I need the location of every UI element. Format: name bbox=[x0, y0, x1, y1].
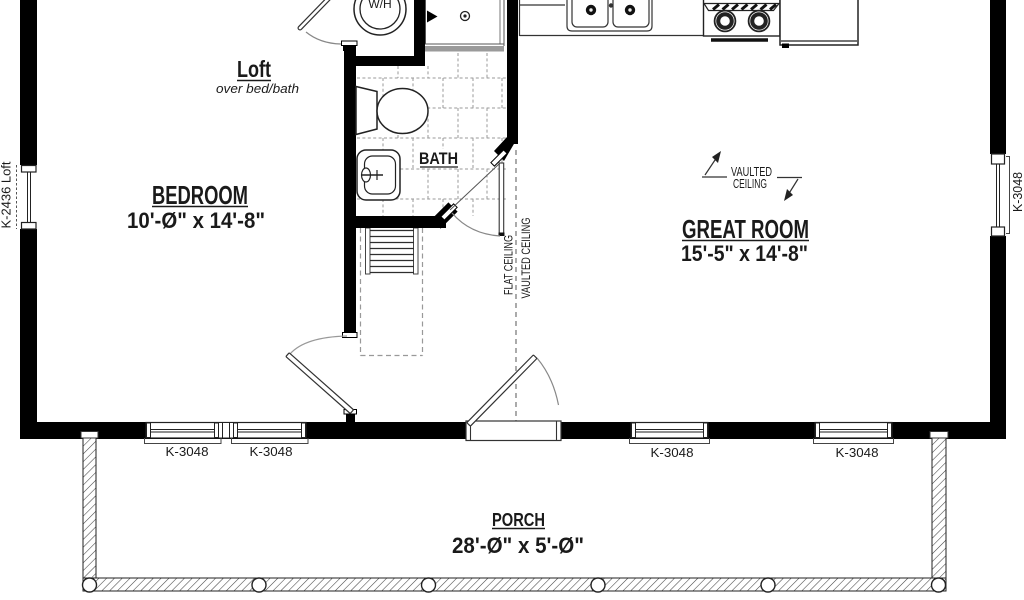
svg-text:K-3048: K-3048 bbox=[1011, 172, 1024, 212]
svg-text:28'-Ø" x 5'-Ø": 28'-Ø" x 5'-Ø" bbox=[452, 533, 584, 558]
svg-text:BATH: BATH bbox=[419, 150, 458, 168]
svg-text:W/H: W/H bbox=[368, 0, 391, 11]
svg-text:over bed/bath: over bed/bath bbox=[216, 82, 299, 96]
svg-text:K-3048: K-3048 bbox=[250, 445, 293, 459]
svg-text:K-3048: K-3048 bbox=[166, 445, 209, 459]
svg-text:BEDROOM: BEDROOM bbox=[152, 180, 248, 210]
svg-text:VAULTED CEILING: VAULTED CEILING bbox=[519, 218, 533, 299]
svg-text:K-3048: K-3048 bbox=[836, 446, 879, 460]
svg-text:10'-Ø" x 14'-8": 10'-Ø" x 14'-8" bbox=[127, 208, 265, 233]
svg-text:CEILING: CEILING bbox=[733, 177, 767, 191]
svg-text:FLAT CEILING: FLAT CEILING bbox=[502, 235, 516, 295]
svg-text:K-2436 Loft: K-2436 Loft bbox=[0, 161, 14, 228]
svg-text:K-3048: K-3048 bbox=[651, 446, 694, 460]
svg-text:GREAT ROOM: GREAT ROOM bbox=[682, 214, 809, 244]
svg-text:15'-5" x 14'-8": 15'-5" x 14'-8" bbox=[681, 241, 808, 266]
svg-text:Loft: Loft bbox=[237, 56, 271, 82]
svg-text:PORCH: PORCH bbox=[492, 510, 545, 530]
